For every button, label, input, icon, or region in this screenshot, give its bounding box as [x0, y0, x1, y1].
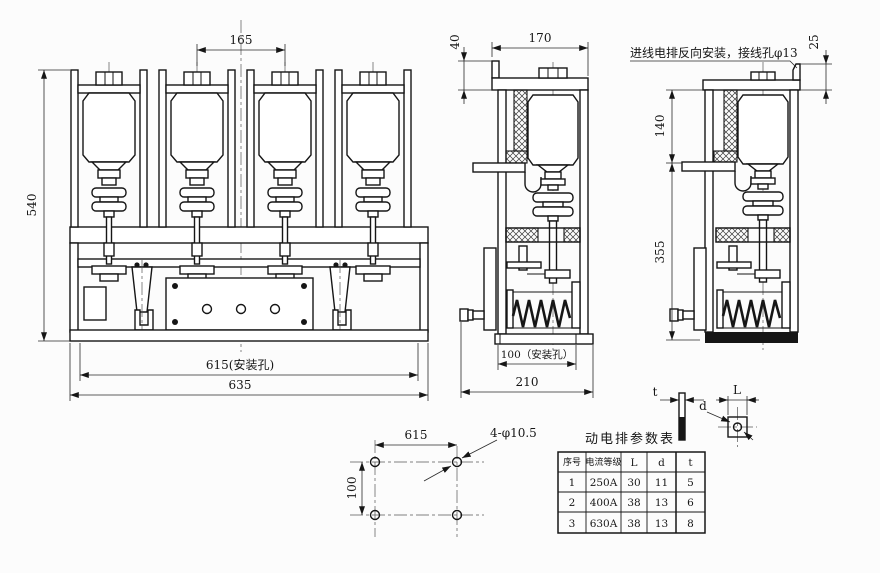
col-header-index: 序号: [563, 456, 581, 468]
base-plate: [705, 332, 798, 343]
support-leg-right: [330, 260, 351, 334]
pole-assembly-2: [159, 62, 235, 281]
label-hole-count: 4-φ10.5: [490, 426, 537, 440]
col-header-d: d: [658, 457, 665, 469]
cell: 5: [687, 477, 694, 489]
mounting-hole-plan: 615 100 4-φ10.5: [345, 426, 537, 537]
note-reverse-install: 进线电排反向安装，接线孔φ13: [630, 45, 798, 60]
vacuum-interrupter: [528, 95, 578, 165]
cell: 13: [655, 497, 668, 509]
insulation-column-hatch: [514, 90, 527, 151]
dim-upper: 140: [653, 115, 667, 138]
label-width: L: [733, 383, 741, 397]
col-header-t: t: [688, 457, 693, 469]
pole-assembly-3: [247, 62, 323, 281]
table-title: 动电排参数表: [585, 431, 675, 447]
dim-tab-height: 25: [807, 34, 821, 49]
cell: 400A: [590, 497, 618, 509]
label-hole-dia: d: [699, 399, 707, 413]
cell: 38: [627, 518, 640, 530]
vacuum-interrupter: [738, 95, 788, 164]
dim-overall-depth: 210: [516, 375, 539, 389]
cell: 30: [627, 477, 640, 489]
busbar-plate: [682, 162, 735, 171]
dim-top-offset: 40: [448, 34, 462, 49]
dim-plan-width: 615: [405, 428, 428, 442]
terminal-tab: [793, 64, 800, 80]
dim-overall-width: 635: [229, 378, 252, 392]
dim-mount-depth: 100（安装孔）: [501, 348, 574, 361]
col-header-current: 电流等级: [585, 456, 621, 468]
cell: 630A: [590, 518, 618, 530]
side-view: 170 40 100（安装孔） 210: [448, 31, 593, 398]
cell: 3: [569, 518, 576, 530]
spring: [507, 282, 580, 328]
dim-lower: 355: [653, 241, 667, 264]
table-row-1: 1 250A 30 11 5: [569, 477, 694, 489]
cell: 38: [627, 497, 640, 509]
drawing-page: 540 165 615(安装孔) 635: [0, 0, 880, 573]
cell: 1: [569, 477, 576, 489]
spring: [717, 282, 790, 328]
dim-depth: 170: [529, 31, 552, 45]
engineering-drawing: 540 165 615(安装孔) 635: [0, 0, 880, 573]
support-leg-left: [132, 260, 153, 334]
cell: 11: [655, 477, 668, 489]
dim-plan-height: 100: [345, 477, 359, 500]
pole-assembly-1: [71, 62, 147, 281]
busbar-plate: [473, 163, 525, 172]
dim-front-height: 540: [25, 194, 39, 217]
cell: 250A: [590, 477, 618, 489]
cell: 13: [655, 518, 668, 530]
cell: 6: [687, 497, 694, 509]
busbar-hole-detail: L d: [699, 383, 759, 447]
parameter-table: 动电排参数表 序号 电流等级 L d t 1 250A 30 11 5 2 40…: [558, 431, 705, 533]
dim-pole-pitch: 165: [230, 33, 253, 47]
col-header-L: L: [631, 457, 638, 469]
label-thickness: t: [653, 385, 658, 399]
table-row-3: 3 630A 38 13 8: [569, 518, 694, 530]
front-view: 540 165 615(安装孔) 635: [25, 20, 428, 401]
dim-mount-width: 615(安装孔): [206, 357, 274, 372]
mechanism-panel: [166, 278, 313, 330]
reversed-side-view: 进线电排反向安装，接线孔φ13 25 140 355: [630, 34, 832, 350]
pole-assembly-4: [335, 62, 411, 281]
cell: 2: [569, 497, 576, 509]
reversed-view-annotation: 进线电排反向安装，接线孔φ13: [630, 45, 798, 68]
cell: 8: [687, 518, 694, 530]
